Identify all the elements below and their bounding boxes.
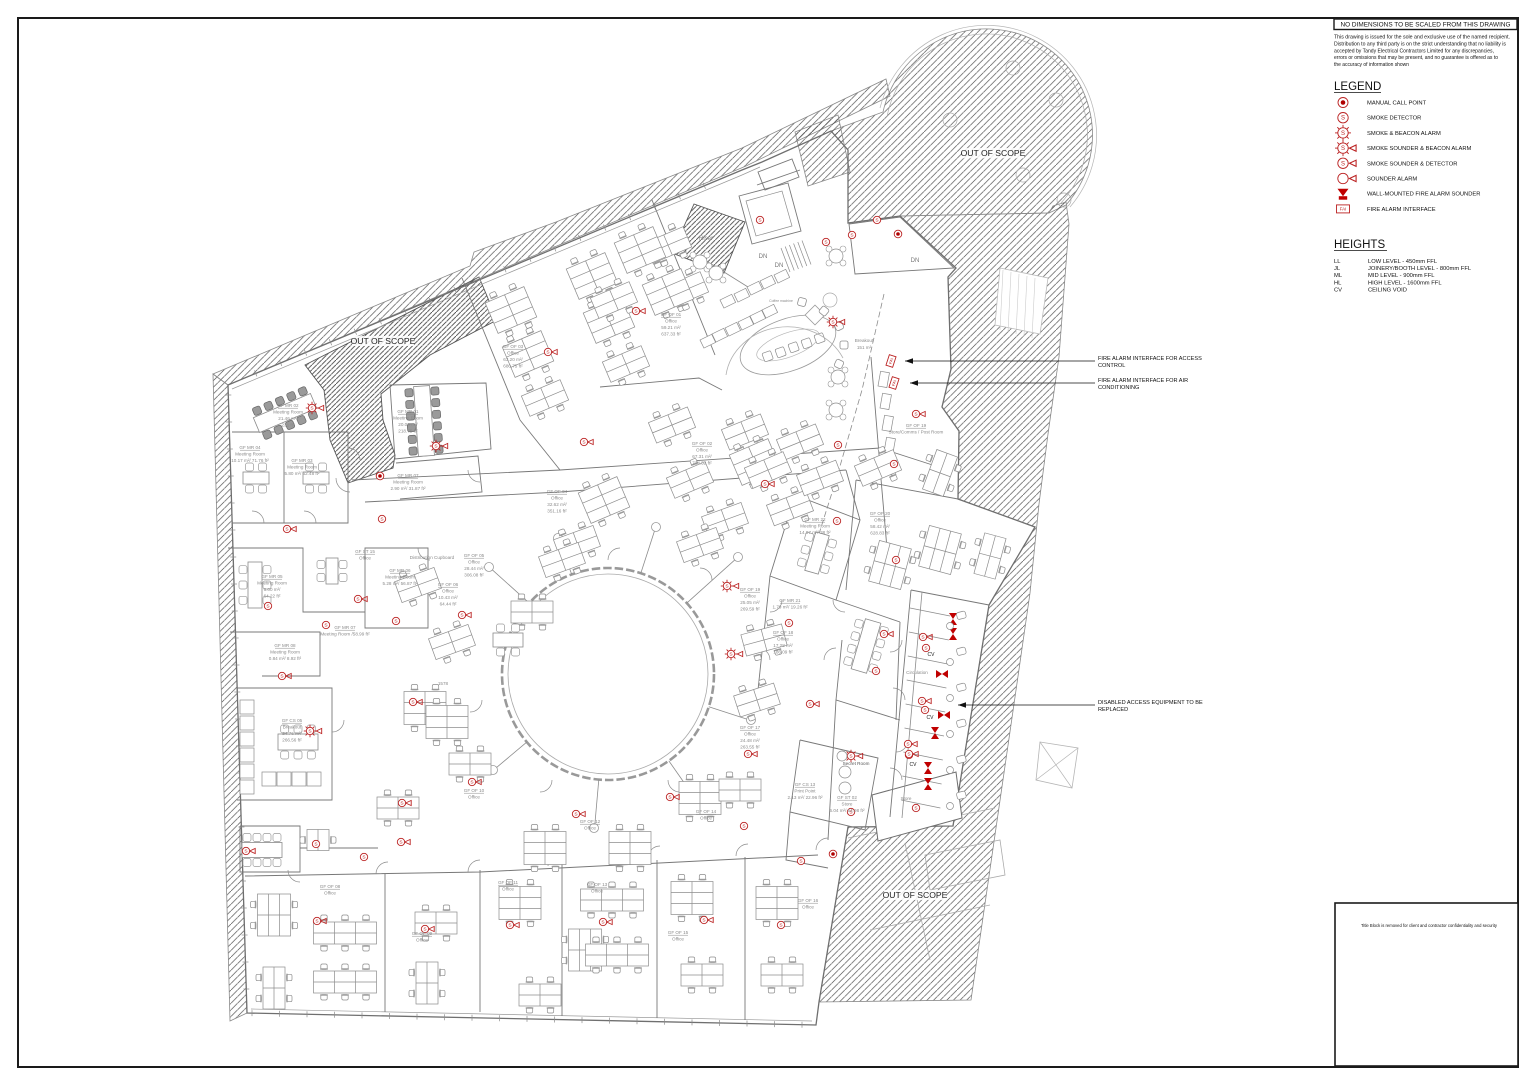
- svg-text:64.44 ft²: 64.44 ft²: [440, 602, 457, 607]
- svg-text:S: S: [779, 922, 782, 928]
- svg-text:S: S: [1341, 131, 1345, 137]
- svg-text:accepted by Tandy Electrical C: accepted by Tandy Electrical Contractors…: [1334, 48, 1494, 54]
- svg-text:GF OF 19: GF OF 19: [906, 423, 927, 428]
- svg-text:S: S: [1341, 116, 1345, 122]
- svg-text:S: S: [315, 918, 318, 924]
- svg-text:GF MR 04: GF MR 04: [239, 445, 261, 450]
- svg-text:DN: DN: [911, 258, 920, 264]
- svg-text:S: S: [601, 919, 604, 925]
- svg-text:S: S: [434, 443, 437, 449]
- svg-text:Office: Office: [442, 589, 454, 594]
- svg-text:S: S: [835, 518, 838, 524]
- svg-text:GF OF 05: GF OF 05: [464, 553, 485, 558]
- svg-text:HL: HL: [1334, 280, 1342, 286]
- svg-text:218.75 ft²: 218.75 ft²: [398, 429, 418, 434]
- svg-text:JOINERY/BOOTH LEVEL - 800mm FF: JOINERY/BOOTH LEVEL - 800mm FFL: [1368, 266, 1472, 272]
- svg-text:14.07 m²/ 38 ft²: 14.07 m²/ 38 ft²: [799, 530, 831, 535]
- svg-text:S: S: [394, 618, 397, 624]
- svg-text:680.75 ft²: 680.75 ft²: [503, 364, 523, 369]
- svg-text:GF OF 18: GF OF 18: [773, 630, 794, 635]
- svg-text:SMOKE DETECTOR: SMOKE DETECTOR: [1367, 116, 1421, 122]
- svg-text:Office: Office: [359, 556, 371, 561]
- svg-text:Office: Office: [468, 560, 480, 565]
- svg-text:151 m²: 151 m²: [857, 345, 872, 350]
- svg-text:SOUNDER ALARM: SOUNDER ALARM: [1367, 177, 1417, 183]
- svg-text:GF OF 10: GF OF 10: [464, 788, 485, 793]
- svg-text:ML: ML: [1334, 273, 1343, 279]
- svg-text:Meeting Room: Meeting Room: [270, 650, 300, 655]
- svg-text:S: S: [285, 526, 288, 532]
- svg-text:CV: CV: [910, 762, 918, 768]
- svg-text:Breakout: Breakout: [855, 338, 874, 343]
- svg-text:S: S: [1341, 146, 1345, 152]
- svg-text:63.20 m²/: 63.20 m²/: [503, 357, 523, 362]
- svg-text:SMOKE & BEACON ALARM: SMOKE & BEACON ALARM: [1367, 131, 1441, 137]
- svg-text:20.06 m²/: 20.06 m²/: [398, 422, 418, 427]
- svg-text:S: S: [324, 622, 327, 628]
- svg-text:CEILING VOID: CEILING VOID: [1368, 287, 1407, 293]
- svg-text:0.84 m²/ 8.92 ft²: 0.84 m²/ 8.92 ft²: [269, 656, 302, 661]
- svg-text:MID LEVEL - 900mm FFL: MID LEVEL - 900mm FFL: [1368, 273, 1435, 279]
- svg-text:OUT OF SCOPE: OUT OF SCOPE: [351, 336, 416, 346]
- svg-text:S: S: [920, 698, 923, 704]
- svg-text:FAI: FAI: [1340, 207, 1347, 212]
- svg-text:25.05 m²/: 25.05 m²/: [740, 600, 760, 605]
- svg-text:LL: LL: [1334, 259, 1341, 265]
- svg-text:S: S: [758, 217, 761, 223]
- svg-text:S: S: [470, 779, 473, 785]
- svg-text:32.62 m²/: 32.62 m²/: [547, 502, 567, 507]
- svg-text:10.43 m²/: 10.43 m²/: [438, 595, 458, 600]
- svg-text:SMOKE SOUNDER & BEACON ALARM: SMOKE SOUNDER & BEACON ALARM: [1367, 146, 1472, 152]
- svg-text:CV: CV: [927, 715, 935, 721]
- svg-text:Office: Office: [672, 937, 684, 942]
- svg-text:637.33 ft²: 637.33 ft²: [661, 332, 681, 337]
- svg-text:6.00 m²/: 6.00 m²/: [264, 587, 282, 592]
- svg-text:S: S: [725, 583, 728, 589]
- svg-text:S: S: [914, 805, 917, 811]
- svg-text:S: S: [914, 411, 917, 417]
- svg-text:S: S: [763, 481, 766, 487]
- svg-text:Office: Office: [551, 496, 563, 501]
- svg-text:GF CS 13: GF CS 13: [795, 782, 816, 787]
- svg-text:Meeting Room: Meeting Room: [393, 480, 423, 485]
- svg-text:Meeting Room /58.99 ft²: Meeting Room /58.99 ft²: [320, 632, 370, 637]
- svg-text:Title Block is removed for cli: Title Block is removed for client and co…: [1361, 923, 1498, 928]
- svg-text:S: S: [892, 461, 895, 467]
- svg-text:2.90 m²/ 31.87 ft²: 2.90 m²/ 31.87 ft²: [391, 486, 426, 491]
- svg-text:28.44 m²/: 28.44 m²/: [464, 566, 484, 571]
- svg-text:64.22 ft²: 64.22 ft²: [264, 594, 281, 599]
- svg-text:S: S: [824, 239, 827, 245]
- svg-text:S: S: [314, 841, 317, 847]
- svg-text:S: S: [380, 516, 383, 522]
- svg-text:Store/Comms / Post Room: Store/Comms / Post Room: [889, 430, 944, 435]
- svg-text:S: S: [582, 439, 585, 445]
- svg-text:1578: 1578: [438, 681, 449, 686]
- svg-text:SMOKE SOUNDER & DETECTOR: SMOKE SOUNDER & DETECTOR: [1367, 161, 1457, 167]
- svg-text:Meeting Room: Meeting Room: [287, 465, 317, 470]
- svg-text:17.28 m²/: 17.28 m²/: [773, 643, 793, 648]
- svg-text:263.55 ft²: 263.55 ft²: [740, 745, 760, 750]
- svg-text:FIRE ALARM INTERFACE FOR AIR: FIRE ALARM INTERFACE FOR AIR: [1098, 378, 1188, 384]
- svg-text:Meeting Room: Meeting Room: [393, 416, 423, 421]
- svg-text:GF MR 21: GF MR 21: [779, 598, 801, 603]
- svg-text:GF OF 17: GF OF 17: [740, 725, 761, 730]
- svg-text:269.59 ft²: 269.59 ft²: [740, 607, 760, 612]
- svg-text:GF ST 02: GF ST 02: [837, 795, 857, 800]
- svg-text:306.08 ft²: 306.08 ft²: [464, 573, 484, 578]
- svg-text:Office: Office: [468, 795, 480, 800]
- svg-text:Meeting Room: Meeting Room: [273, 410, 303, 415]
- svg-text:GF MR 05: GF MR 05: [261, 574, 283, 579]
- svg-text:This drawing is issued for the: This drawing is issued for the sole and …: [1334, 35, 1510, 41]
- svg-text:CV: CV: [1334, 287, 1342, 293]
- svg-text:21.46 m²/: 21.46 m²/: [278, 416, 298, 421]
- svg-text:GF ST 15: GF ST 15: [355, 549, 375, 554]
- svg-text:S: S: [729, 651, 732, 657]
- svg-text:S: S: [923, 707, 926, 713]
- svg-text:GF MR 03: GF MR 03: [291, 458, 313, 463]
- svg-text:GF OF 08: GF OF 08: [320, 884, 341, 889]
- svg-text:DISABLED ACCESS EQUIPMENT TO B: DISABLED ACCESS EQUIPMENT TO BE: [1098, 700, 1203, 706]
- svg-text:FIRE ALARM INTERFACE: FIRE ALARM INTERFACE: [1367, 207, 1436, 213]
- svg-text:GF MR 22: GF MR 22: [804, 517, 826, 522]
- svg-text:Office: Office: [744, 594, 756, 599]
- svg-text:S: S: [574, 811, 577, 817]
- svg-text:Office: Office: [665, 319, 677, 324]
- svg-text:Breakout: Breakout: [283, 725, 302, 730]
- svg-text:GF MR 07: GF MR 07: [397, 473, 419, 478]
- svg-text:CONDITIONING: CONDITIONING: [1098, 385, 1139, 391]
- svg-text:724.52 ft²: 724.52 ft²: [692, 461, 712, 466]
- svg-text:GF OF 01: GF OF 01: [661, 312, 682, 317]
- svg-text:S: S: [310, 405, 313, 411]
- svg-text:WALL-MOUNTED FIRE ALARM SOUNDE: WALL-MOUNTED FIRE ALARM SOUNDER: [1367, 192, 1480, 198]
- svg-text:Riser: Riser: [699, 236, 713, 242]
- svg-text:GF OF 02: GF OF 02: [692, 441, 713, 446]
- svg-text:GF OF 14: GF OF 14: [696, 809, 717, 814]
- svg-text:GF OF 09: GF OF 09: [412, 931, 433, 936]
- svg-text:CV: CV: [928, 652, 936, 658]
- svg-text:S: S: [280, 673, 283, 679]
- svg-text:S: S: [907, 751, 910, 757]
- svg-text:S: S: [411, 699, 414, 705]
- svg-text:GF CS 05: GF CS 05: [282, 718, 303, 723]
- svg-text:S: S: [634, 308, 637, 314]
- svg-text:231 ft²: 231 ft²: [281, 423, 294, 428]
- svg-text:67.31 m²/: 67.31 m²/: [692, 454, 712, 459]
- svg-text:5.28 m²/ 56.87 ft²: 5.28 m²/ 56.87 ft²: [383, 581, 418, 586]
- svg-text:CONTROL: CONTROL: [1098, 363, 1125, 369]
- svg-text:Office: Office: [502, 887, 514, 892]
- svg-text:Meeting Room: Meeting Room: [800, 524, 830, 529]
- svg-text:GF OF 20: GF OF 20: [870, 511, 891, 516]
- svg-text:DN: DN: [775, 263, 784, 269]
- svg-text:S: S: [799, 858, 802, 864]
- svg-text:Office: Office: [802, 905, 814, 910]
- svg-text:S: S: [400, 800, 403, 806]
- svg-text:S: S: [668, 794, 671, 800]
- svg-text:LEGEND: LEGEND: [1334, 81, 1381, 93]
- svg-text:Office: Office: [324, 891, 336, 896]
- svg-text:GF OF 19: GF OF 19: [740, 587, 761, 592]
- svg-text:58.42 m²/: 58.42 m²/: [870, 524, 890, 529]
- svg-text:Secret Room: Secret Room: [843, 761, 870, 766]
- svg-text:GF OF 04: GF OF 04: [547, 489, 568, 494]
- svg-text:Office: Office: [874, 518, 886, 523]
- svg-text:Office: Office: [777, 637, 789, 642]
- svg-text:OUT OF SCOPE: OUT OF SCOPE: [961, 148, 1026, 158]
- svg-text:59.21 m²/: 59.21 m²/: [661, 325, 681, 330]
- svg-text:S: S: [508, 922, 511, 928]
- svg-text:S: S: [850, 232, 853, 238]
- svg-text:186.09 ft²: 186.09 ft²: [773, 650, 793, 655]
- svg-text:S: S: [836, 442, 839, 448]
- svg-text:NO DIMENSIONS TO BE SCALED FRO: NO DIMENSIONS TO BE SCALED FROM THIS DRA…: [1341, 23, 1511, 29]
- svg-text:S: S: [874, 668, 877, 674]
- svg-text:GF OF 06: GF OF 06: [438, 582, 459, 587]
- svg-text:S: S: [746, 751, 749, 757]
- svg-text:266.56 ft²: 266.56 ft²: [282, 738, 302, 743]
- svg-text:DN: DN: [759, 254, 768, 260]
- svg-text:6.04 m²/ 64.98 ft²: 6.04 m²/ 64.98 ft²: [830, 808, 865, 813]
- svg-text:errors or omissions that may b: errors or omissions that may be present,…: [1334, 55, 1498, 61]
- svg-text:Office: Office: [700, 816, 712, 821]
- svg-text:GF OF 16: GF OF 16: [798, 898, 819, 903]
- svg-text:Meeting Room: Meeting Room: [257, 581, 287, 586]
- svg-text:GF OF 13: GF OF 13: [587, 882, 608, 887]
- svg-text:5.80 m²/ 62.48 ft²: 5.80 m²/ 62.48 ft²: [285, 471, 320, 476]
- svg-text:GF OF 15: GF OF 15: [668, 930, 689, 935]
- svg-text:HEIGHTS: HEIGHTS: [1334, 239, 1385, 251]
- svg-text:GF MR 02: GF MR 02: [277, 403, 299, 408]
- svg-text:S: S: [399, 839, 402, 845]
- svg-text:S: S: [1341, 161, 1345, 167]
- svg-text:2.13 m²/ 22.96 ft²: 2.13 m²/ 22.96 ft²: [788, 795, 823, 800]
- svg-text:Coffee machine: Coffee machine: [769, 299, 793, 303]
- svg-text:REPLACED: REPLACED: [1098, 707, 1128, 713]
- svg-text:S: S: [460, 612, 463, 618]
- svg-text:S: S: [742, 823, 745, 829]
- svg-text:Meeting Room: Meeting Room: [385, 575, 415, 580]
- svg-text:24.76 m²/: 24.76 m²/: [282, 731, 302, 736]
- svg-text:S: S: [906, 741, 909, 747]
- svg-text:Circulation: Circulation: [906, 670, 928, 675]
- svg-text:the accuracy of information sh: the accuracy of information shown: [1334, 62, 1409, 68]
- svg-text:OUT OF SCOPE: OUT OF SCOPE: [883, 890, 948, 900]
- svg-text:Distribution to any third part: Distribution to any third party is on th…: [1334, 41, 1506, 47]
- svg-text:S: S: [894, 557, 897, 563]
- svg-text:JL: JL: [1334, 266, 1341, 272]
- svg-text:S: S: [546, 349, 549, 355]
- svg-text:10.17 m²/ 71.76 ft²: 10.17 m²/ 71.76 ft²: [231, 458, 269, 463]
- svg-text:Distribution Cupboard: Distribution Cupboard: [410, 555, 455, 560]
- svg-text:GF MR 01: GF MR 01: [397, 409, 419, 414]
- svg-text:S: S: [702, 917, 705, 923]
- svg-text:S: S: [875, 217, 878, 223]
- svg-text:S: S: [849, 753, 852, 759]
- svg-text:S: S: [831, 319, 834, 325]
- svg-text:Office: Office: [696, 448, 708, 453]
- svg-text:GF MR 07: GF MR 07: [334, 625, 356, 630]
- svg-text:HIGH LEVEL - 1600mm FFL: HIGH LEVEL - 1600mm FFL: [1368, 280, 1442, 286]
- svg-text:S: S: [308, 728, 311, 734]
- svg-text:GF OF 12: GF OF 12: [580, 819, 601, 824]
- svg-text:Print Point: Print Point: [794, 789, 816, 794]
- svg-text:Office: Office: [416, 938, 428, 943]
- svg-text:Office: Office: [584, 826, 596, 831]
- svg-text:GF MR 08: GF MR 08: [274, 643, 296, 648]
- svg-text:S: S: [266, 603, 269, 609]
- svg-text:Office: Office: [744, 732, 756, 737]
- svg-text:Office: Office: [591, 889, 603, 894]
- svg-text:24.48 m²/: 24.48 m²/: [740, 738, 760, 743]
- svg-text:1.79 m²/ 19.26 ft²: 1.79 m²/ 19.26 ft²: [773, 605, 808, 610]
- svg-text:S: S: [882, 631, 885, 637]
- svg-text:MANUAL CALL POINT: MANUAL CALL POINT: [1367, 101, 1427, 107]
- svg-text:Meeting Room: Meeting Room: [235, 452, 265, 457]
- svg-text:S: S: [356, 596, 359, 602]
- svg-text:S: S: [921, 634, 924, 640]
- svg-text:LOW LEVEL - 450mm FFL: LOW LEVEL - 450mm FFL: [1368, 259, 1438, 265]
- svg-text:GF MR 06: GF MR 06: [389, 568, 411, 573]
- svg-text:GF OF 11: GF OF 11: [498, 880, 519, 885]
- svg-text:S: S: [924, 645, 927, 651]
- svg-text:Store: Store: [842, 802, 853, 807]
- svg-text:FIRE ALARM INTERFACE FOR ACCES: FIRE ALARM INTERFACE FOR ACCESS: [1098, 356, 1202, 362]
- svg-text:351.16 ft²: 351.16 ft²: [547, 509, 567, 514]
- svg-text:S: S: [808, 701, 811, 707]
- svg-text:Office: Office: [507, 351, 519, 356]
- svg-text:GF OF 03: GF OF 03: [503, 344, 524, 349]
- svg-text:S: S: [362, 854, 365, 860]
- svg-text:S: S: [787, 620, 790, 626]
- svg-text:S: S: [244, 848, 247, 854]
- svg-text:Store: Store: [901, 796, 912, 801]
- svg-text:628.83 ft²: 628.83 ft²: [870, 531, 890, 536]
